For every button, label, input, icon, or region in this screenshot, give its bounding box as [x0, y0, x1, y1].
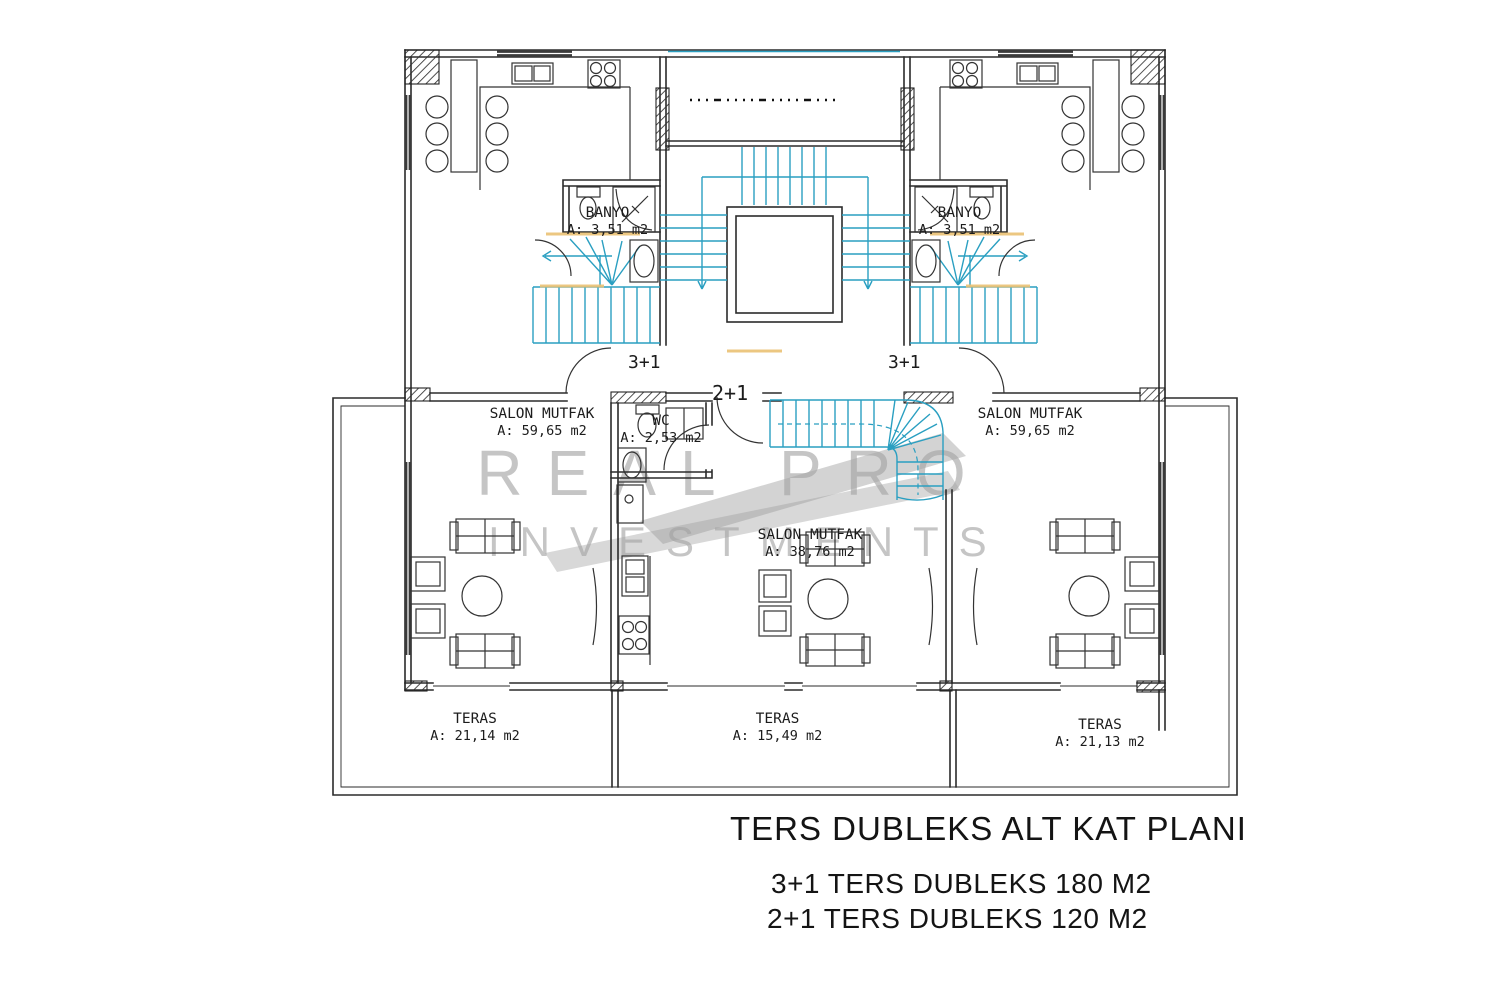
room-label-salon-center: SALON MUTFAK A: 38,76 m2 [730, 526, 890, 561]
unit-label-left: 3+1 [628, 352, 661, 373]
room-label-banyo-left: BANYO A: 3,51 m2 [560, 204, 655, 239]
room-name: SALON MUTFAK [452, 405, 632, 423]
room-name: BANYO [912, 204, 1007, 222]
room-name: SALON MUTFAK [730, 526, 890, 544]
room-area: A: 21,13 m2 [1040, 734, 1160, 751]
room-label-teras-center: TERAS A: 15,49 m2 [725, 710, 830, 745]
room-label-salon-right: SALON MUTFAK A: 59,65 m2 [940, 405, 1120, 440]
room-name: BANYO [560, 204, 655, 222]
room-area: A: 38,76 m2 [730, 544, 890, 561]
plan-title: TERS DUBLEKS ALT KAT PLANI [730, 810, 1247, 848]
room-area: A: 15,49 m2 [725, 728, 830, 745]
room-area: A: 59,65 m2 [452, 423, 632, 440]
labels: BANYO A: 3,51 m2 BANYO A: 3,51 m2 SALON … [0, 0, 1500, 998]
room-name: TERAS [405, 710, 545, 728]
room-label-wc: WC A: 2,53 m2 [606, 412, 716, 447]
room-area: A: 2,53 m2 [606, 430, 716, 447]
room-area: A: 3,51 m2 [912, 222, 1007, 239]
room-area: A: 59,65 m2 [940, 423, 1120, 440]
room-name: TERAS [725, 710, 830, 728]
room-name: TERAS [1040, 716, 1160, 734]
room-label-teras-right: TERAS A: 21,13 m2 [1040, 716, 1160, 751]
room-name: SALON MUTFAK [940, 405, 1120, 423]
room-area: A: 3,51 m2 [560, 222, 655, 239]
unit-label-center: 2+1 [712, 381, 748, 405]
room-label-banyo-right: BANYO A: 3,51 m2 [912, 204, 1007, 239]
room-area: A: 21,14 m2 [405, 728, 545, 745]
floor-plan-page: REAL PRO INVESTMENTS [0, 0, 1500, 998]
room-label-salon-left: SALON MUTFAK A: 59,65 m2 [452, 405, 632, 440]
room-name: WC [606, 412, 716, 430]
plan-subtitle-1: 3+1 TERS DUBLEKS 180 M2 [771, 868, 1152, 900]
unit-label-right: 3+1 [888, 352, 921, 373]
plan-subtitle-2: 2+1 TERS DUBLEKS 120 M2 [767, 903, 1148, 935]
room-label-teras-left: TERAS A: 21,14 m2 [405, 710, 545, 745]
